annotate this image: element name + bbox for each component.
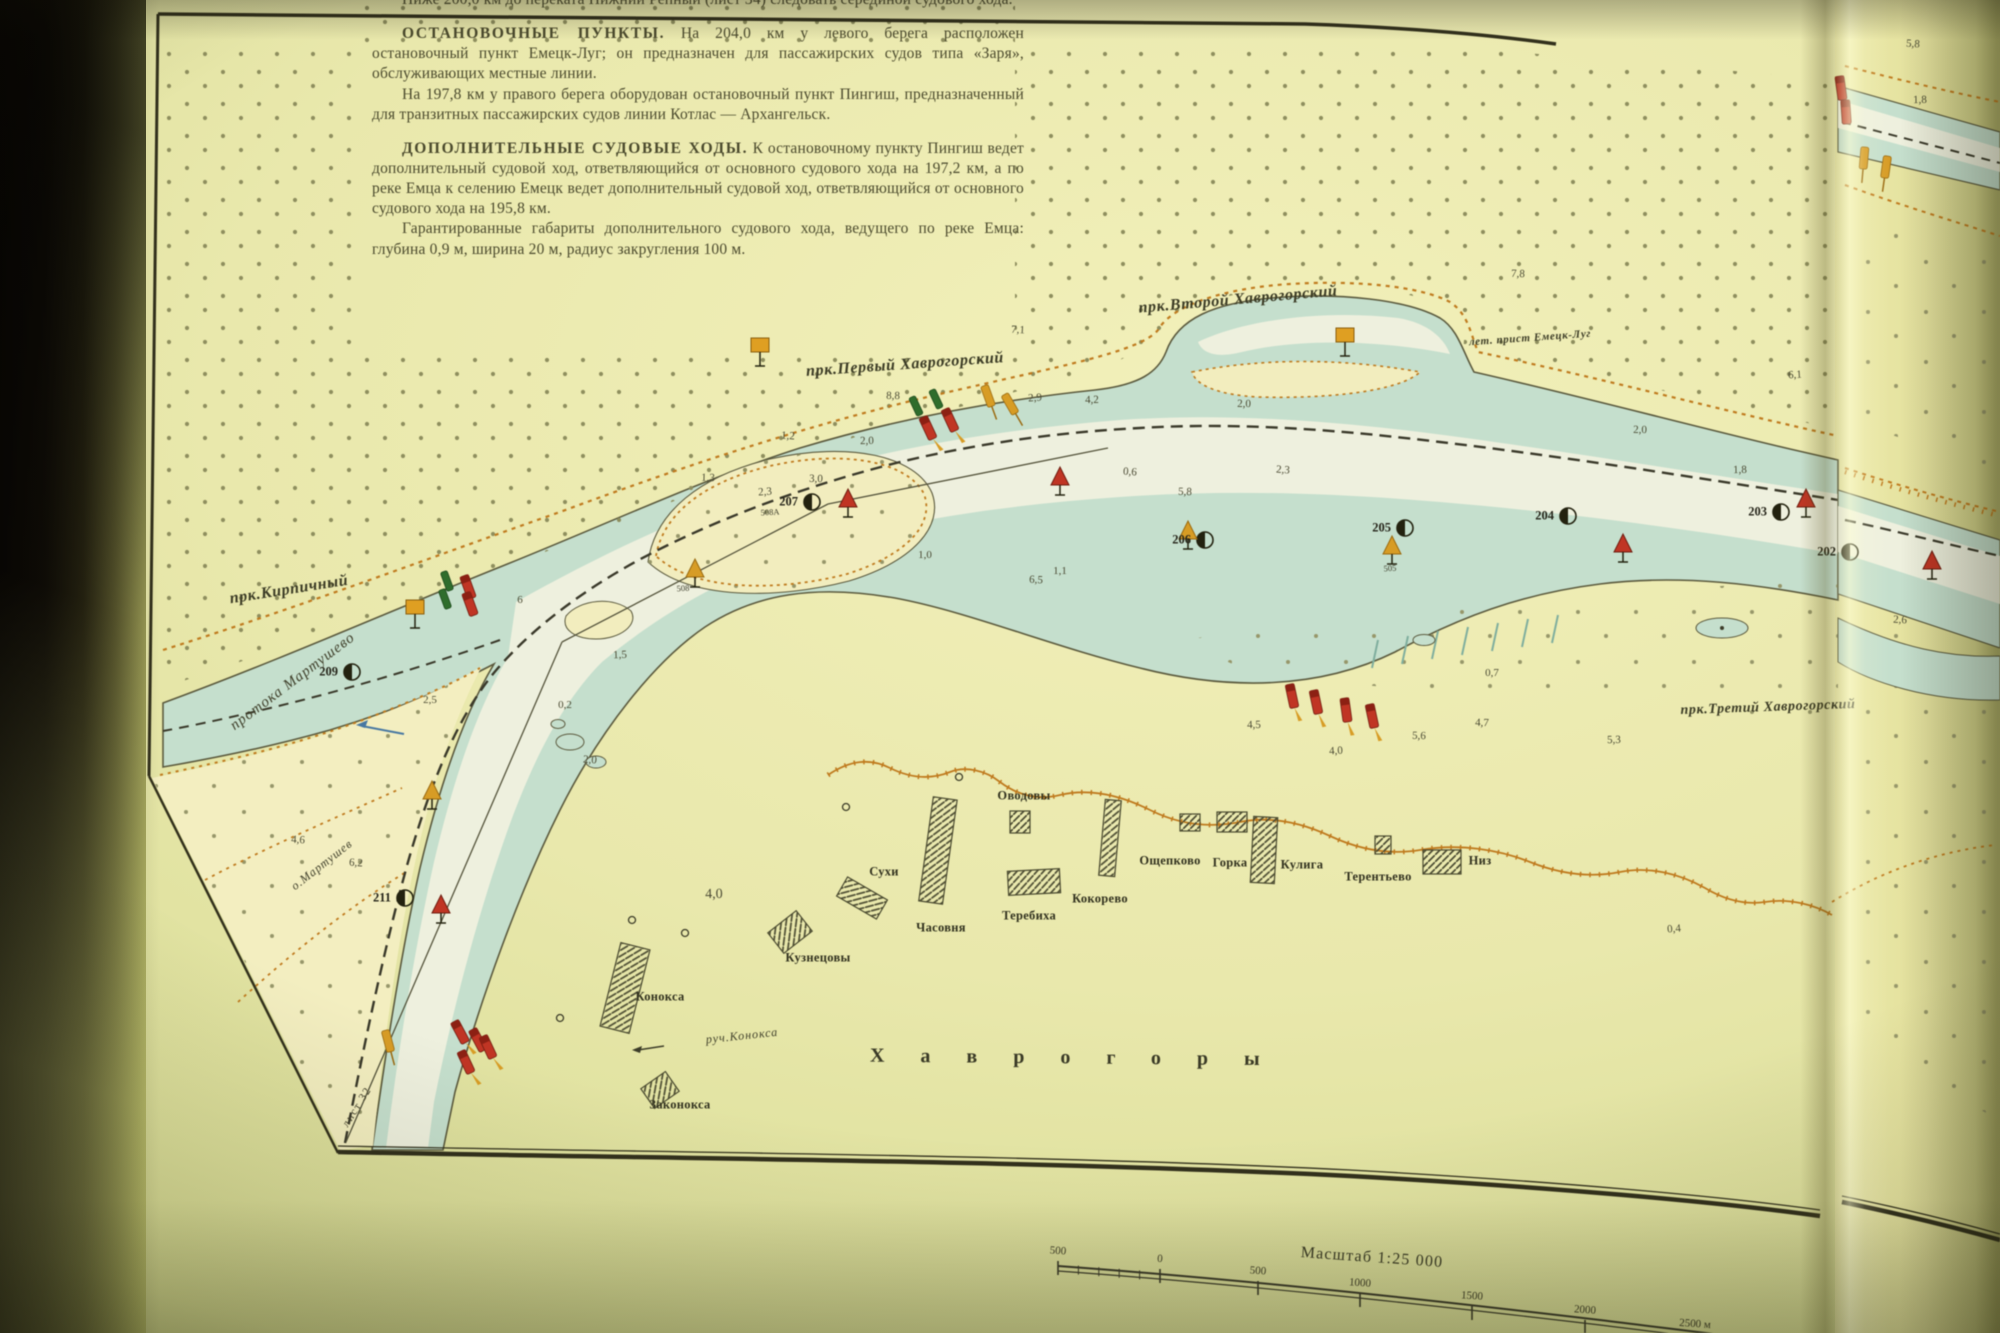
depth-sounding: 4,6 [291,834,305,847]
village-label: Низ [1469,854,1492,869]
depth-sounding: 2,0 [1237,398,1251,410]
stops-paragraph: ОСТАНОВОЧНЫЕ ПУНКТЫ. На 204,0 км у левог… [372,24,1024,84]
depth-sounding: 1,5 [613,649,627,661]
depth-sounding: 2,3 [758,486,773,499]
depth-sounding: 2,0 [1633,424,1647,436]
depth-sounding: 2,0 [860,435,874,447]
village-label: Кокорево [1072,892,1128,907]
km-mark-number: 204 [1535,509,1554,524]
km-mark-number: 207 [779,495,798,510]
village-label: Конокса [635,990,684,1005]
village-label: Теребиха [1002,909,1056,924]
depth-sounding: 6,1 [1788,369,1802,382]
stops-paragraph-2: На 197,8 км у правого берега оборудован … [372,85,1024,125]
village-bluff-teeth [828,762,1832,915]
extra-heading: ДОПОЛНИТЕЛЬНЫЕ СУДОВЫЕ ХОДЫ. [402,140,748,157]
depth-sounding: 5,8 [1906,38,1921,51]
depth-sounding: 0,2 [558,699,572,711]
scale-tick-number: 500 [1249,1264,1266,1277]
depth-sounding: 5,3 [1607,734,1621,746]
village-bluff-line [828,762,1832,915]
km-mark-number: 211 [373,891,391,906]
spar-red-buoy [1365,703,1382,742]
depth-sounding: 0,6 [1123,466,1138,479]
km-mark-number: 203 [1748,505,1767,520]
extra-paragraph: ДОПОЛНИТЕЛЬНЫЕ СУДОВЫЕ ХОДЫ. К остановоч… [372,139,1024,220]
depth-sounding: 4,2 [1085,394,1099,406]
buoy-number: 505 [1383,563,1396,574]
depth-sounding: 6 [517,594,523,606]
depth-sounding: 6,5 [1029,574,1043,587]
spar-red-buoy [1285,683,1302,722]
spar-red-buoy [479,1034,504,1072]
depth-sounding: 1,2 [781,430,796,443]
depth-sounding: 7,1 [1011,324,1025,337]
depth-sounding: 8,8 [886,390,900,402]
depth-sounding: 0,7 [1485,667,1499,679]
village-label: Горка [1213,856,1248,871]
depth-sounding: 0,4 [1667,923,1682,936]
village-label: Часовня [916,921,966,936]
depth-sounding: 7,8 [1511,268,1525,280]
atlas-photo: Ниже 200,0 км до переката Нижний Репный … [0,0,2000,1333]
km-mark-number: 209 [319,665,338,680]
spar-red-buoy [1309,689,1326,728]
scale-tick-number: 1500 [1461,1289,1484,1303]
depth-sounding: 2,6 [1893,614,1907,627]
stream-arrow [632,1046,664,1053]
km-mark-number: 206 [1172,533,1191,548]
depth-sounding: 6,2 [349,857,364,870]
scale-tick-number: 2000 [1574,1303,1597,1317]
depth-sounding: 2,0 [583,754,598,767]
depth-sounding: 4,0 [705,887,723,903]
depth-sounding: 1,3 [701,472,715,484]
village-label: Сухи [869,865,899,880]
depth-sounding: 5,8 [1178,486,1192,498]
adjacent-page-map [1832,66,2000,1120]
buoy-number: 508А [760,507,779,518]
depth-sounding: 2,9 [1028,392,1043,405]
village-label: Ощепково [1139,854,1200,869]
km-mark-number: 202 [1817,545,1836,560]
depth-sounding: 5,6 [1412,730,1426,742]
village-label: Терентьево [1344,870,1411,885]
buoy-number: 508 [676,583,689,594]
depth-sounding: 4,0 [1329,745,1343,758]
village-label: Законокса [649,1098,710,1113]
spar-red-buoy [1340,697,1355,736]
km-mark-number: 205 [1372,521,1391,536]
scale-tick-number: 500 [1049,1244,1066,1257]
village-label: Кулига [1281,858,1324,873]
extra-paragraph-2: Гарантированные габариты дополнительного… [372,219,1024,259]
depth-sounding: 1,8 [1733,464,1747,476]
depth-sounding: 4,5 [1247,719,1261,731]
description-block: Ниже 200,0 км до переката Нижний Репный … [372,0,1024,260]
scale-tick-number: 1000 [1349,1276,1372,1290]
depth-sounding: 4,7 [1475,717,1489,729]
intro-paragraph: Ниже 200,0 км до переката Нижний Репный … [372,0,1024,10]
depth-sounding: 2,5 [423,694,437,706]
area-title: Хаврогоры [870,1045,1296,1072]
depth-sounding: 1,0 [918,549,932,561]
depth-sounding: 1,8 [1913,94,1927,106]
stops-heading: ОСТАНОВОЧНЫЕ ПУНКТЫ. [402,25,665,42]
scale-tick-number: 0 [1157,1253,1163,1265]
scale-tick-number: 2500 м [1679,1317,1711,1331]
depth-sounding: 3,0 [809,473,823,485]
depth-sounding: 2,3 [1276,464,1291,477]
pond-dot [1720,626,1724,630]
village-label: Оводовы [997,789,1050,804]
spar-red-buoy [1841,100,1852,125]
village-label: Кузнецовы [785,951,850,966]
depth-sounding: 1,1 [1053,565,1067,577]
